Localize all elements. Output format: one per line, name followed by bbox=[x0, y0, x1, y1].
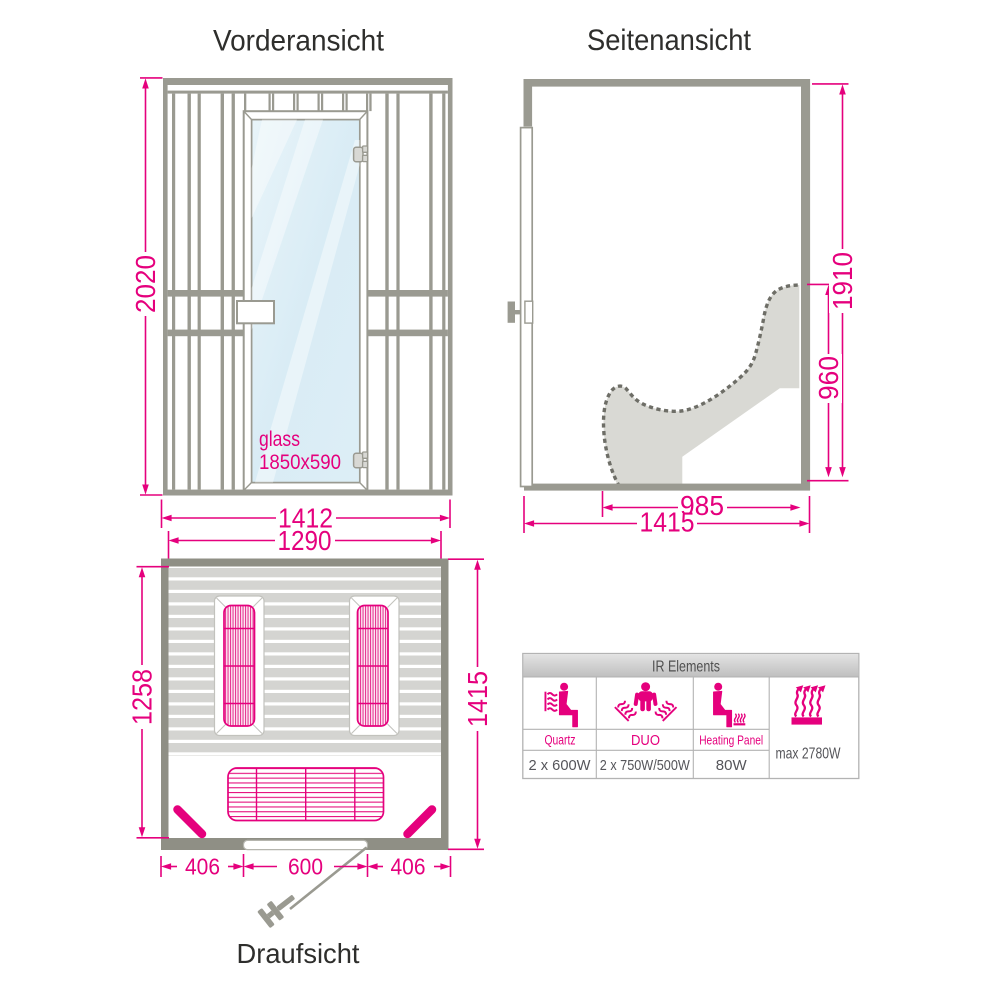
svg-text:DUO: DUO bbox=[631, 733, 660, 749]
svg-text:Seitenansicht: Seitenansicht bbox=[587, 24, 752, 57]
svg-text:600: 600 bbox=[288, 854, 323, 880]
svg-text:Draufsicht: Draufsicht bbox=[237, 938, 360, 969]
svg-text:Vorderansicht: Vorderansicht bbox=[213, 25, 385, 58]
svg-text:960: 960 bbox=[813, 356, 844, 400]
svg-text:2 x 750W/500W: 2 x 750W/500W bbox=[600, 757, 691, 774]
svg-text:1850x590: 1850x590 bbox=[259, 451, 341, 474]
svg-text:2020: 2020 bbox=[130, 255, 161, 313]
svg-text:1415: 1415 bbox=[462, 671, 493, 727]
svg-text:1910: 1910 bbox=[827, 252, 858, 310]
svg-text:1415: 1415 bbox=[640, 507, 695, 538]
svg-text:glass: glass bbox=[259, 428, 300, 451]
svg-text:Heating Panel: Heating Panel bbox=[699, 734, 763, 748]
svg-text:406: 406 bbox=[391, 854, 426, 880]
svg-text:1290: 1290 bbox=[278, 525, 332, 556]
svg-text:Quartz: Quartz bbox=[545, 733, 576, 748]
svg-text:1258: 1258 bbox=[127, 669, 158, 725]
svg-text:80W: 80W bbox=[716, 757, 748, 774]
svg-text:IR Elements: IR Elements bbox=[652, 659, 720, 676]
svg-text:max 2780W: max 2780W bbox=[776, 746, 842, 763]
svg-text:406: 406 bbox=[185, 854, 220, 880]
svg-text:2 x 600W: 2 x 600W bbox=[529, 757, 592, 774]
